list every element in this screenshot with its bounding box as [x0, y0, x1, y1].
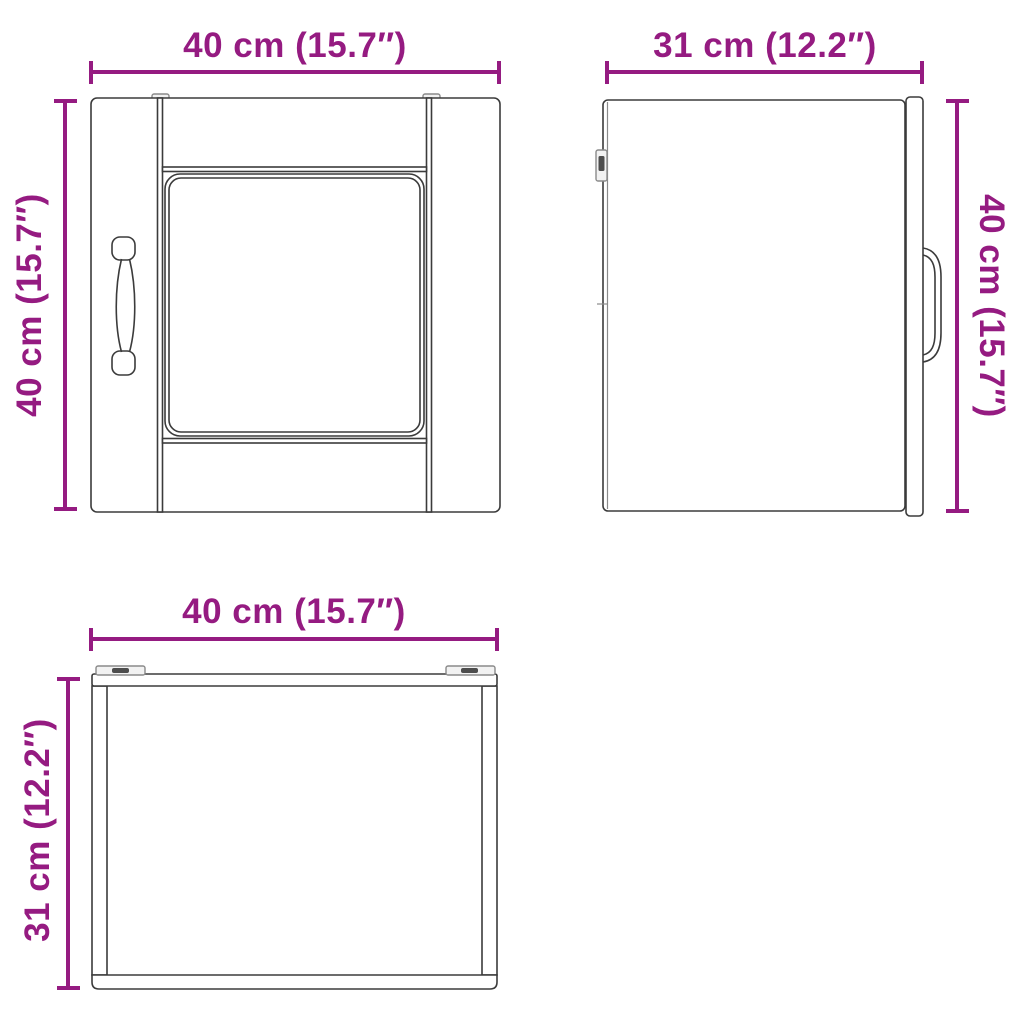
door-rail-top	[163, 167, 427, 172]
hinge-pin	[599, 156, 605, 171]
door-edge-strip	[906, 97, 923, 516]
side-view-drawing	[596, 97, 941, 516]
front-view-drawing	[91, 94, 500, 512]
top-depth-label: 31 cm (12.2″)	[18, 620, 58, 1024]
side-width-label: 31 cm (12.2″)	[565, 26, 965, 66]
handle-profile-outer	[923, 248, 941, 362]
handle-knob-bottom	[112, 351, 135, 375]
handle-profile-inner	[923, 255, 935, 355]
hinge-detail	[596, 150, 607, 181]
top-width-label: 40 cm (15.7″)	[94, 592, 494, 632]
cabinet-body-outline	[603, 100, 905, 511]
front-width-label: 40 cm (15.7″)	[95, 26, 495, 66]
top-view-drawing	[92, 666, 497, 989]
side-panel-right	[482, 686, 497, 975]
product-dimension-diagram: 40 cm (15.7″) 40 cm (15.7″) 31 cm (12.2″…	[0, 0, 1024, 1024]
front-height-label: 40 cm (15.7″)	[10, 95, 50, 515]
side-height-dimension	[946, 101, 969, 511]
hinge-pin	[461, 668, 478, 673]
hinge-pin	[112, 668, 129, 673]
door-stile-left	[158, 98, 163, 512]
door-rail-bottom	[163, 439, 427, 444]
back-panel-strip	[92, 975, 497, 989]
front-height-dimension	[54, 101, 77, 509]
top-depth-dimension	[57, 679, 80, 988]
door-stile-right	[427, 98, 432, 512]
hinge-detail	[446, 666, 495, 675]
door-handle-side	[923, 248, 941, 362]
handle-knob-top	[112, 237, 135, 260]
door-front-strip	[92, 674, 497, 686]
hinge-detail	[96, 666, 145, 675]
cabinet-drawing-canvas	[0, 0, 1024, 1024]
side-panel-left	[92, 686, 107, 975]
side-height-label: 40 cm (15.7″)	[971, 96, 1011, 516]
cabinet-door-outline	[91, 98, 500, 512]
